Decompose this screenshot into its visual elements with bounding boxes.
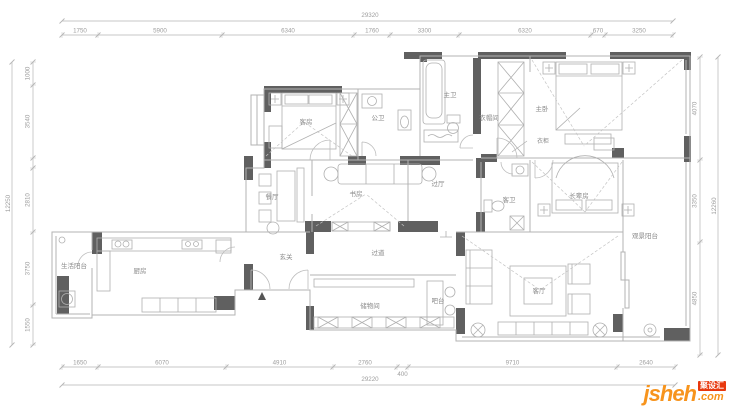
watermark-logo: jsheh 聚设汇 .com xyxy=(616,381,726,409)
wardrobe-cloakroom xyxy=(498,62,524,156)
dim-label: 3540 xyxy=(25,114,32,128)
room-label: 玄关 xyxy=(280,252,294,261)
study-furniture xyxy=(324,164,436,231)
room-label: 公卫 xyxy=(372,114,386,122)
dim-label: 4910 xyxy=(273,360,287,367)
room-label: 过厅 xyxy=(432,179,446,188)
dining-furniture xyxy=(259,168,304,234)
dim-label: 1750 xyxy=(73,28,87,35)
room-label: 厨房 xyxy=(134,266,147,275)
room-label: 储物间 xyxy=(360,301,380,310)
wardrobe-guest xyxy=(340,93,357,156)
dim-label: 2760 xyxy=(358,360,372,367)
annotations: 衣柜 xyxy=(512,137,549,152)
dim-label: 3300 xyxy=(418,28,432,35)
logo-badge: 聚设汇 xyxy=(698,381,726,391)
room-label: 过道 xyxy=(372,248,386,257)
dim-label: 1650 xyxy=(73,360,87,367)
floor-plan-drawing: 2932017505900634017603300632067032501650… xyxy=(0,0,730,411)
room-label: 餐厅 xyxy=(266,192,280,201)
room-label: 吧台 xyxy=(432,296,445,305)
dim-total-label: 29320 xyxy=(361,12,379,19)
dim-label: 400 xyxy=(397,371,408,378)
dim-label: 2810 xyxy=(25,193,32,207)
dim-label: 4070 xyxy=(692,101,699,115)
dim-label: 1000 xyxy=(25,66,32,80)
entry-marker xyxy=(258,292,266,300)
dim-label: 3750 xyxy=(25,261,32,275)
kitchen-fixtures xyxy=(97,238,231,312)
dim-label: 6340 xyxy=(281,28,295,35)
dim-label: 3350 xyxy=(692,194,699,208)
dim-label: 6320 xyxy=(518,28,532,35)
dim-label: 1760 xyxy=(365,28,379,35)
view-balcony-fixtures xyxy=(644,324,656,336)
guest-bathroom-fixtures xyxy=(362,94,411,130)
room-label: 书房 xyxy=(350,189,363,198)
dim-label: 2640 xyxy=(639,360,653,367)
room-label: 长辈房 xyxy=(569,191,589,200)
dim-label: 6070 xyxy=(155,360,169,367)
annotation-label: 衣柜 xyxy=(537,137,549,145)
dim-total-label: 12250 xyxy=(5,194,12,212)
dim-label: 5900 xyxy=(153,28,167,35)
logo-brand-text: jsheh xyxy=(644,383,696,405)
room-label: 客厅 xyxy=(533,286,547,295)
room-label: 观景阳台 xyxy=(632,231,658,240)
dim-label: 1550 xyxy=(25,318,32,332)
dim-label: 670 xyxy=(593,28,604,35)
bed-master-bedroom xyxy=(543,62,635,150)
dim-label: 3250 xyxy=(632,28,646,35)
room-label: 生活阳台 xyxy=(61,261,87,270)
dim-total-label: 29220 xyxy=(361,376,379,383)
room-label: 衣帽间 xyxy=(479,113,499,122)
dim-label: 9710 xyxy=(506,360,520,367)
dim-label: 4850 xyxy=(692,291,699,305)
room-label: 客房 xyxy=(300,117,313,126)
logo-tld-text: .com xyxy=(698,392,724,403)
dim-total-label: 12260 xyxy=(711,197,718,215)
floor-plan-canvas: 2932017505900634017603300632067032501650… xyxy=(0,0,730,411)
room-label: 客卫 xyxy=(503,195,517,204)
master-bathroom-fixtures xyxy=(423,60,460,142)
room-label: 主卧 xyxy=(536,104,550,113)
level-marker xyxy=(440,231,452,237)
room-label: 主卫 xyxy=(444,90,458,99)
